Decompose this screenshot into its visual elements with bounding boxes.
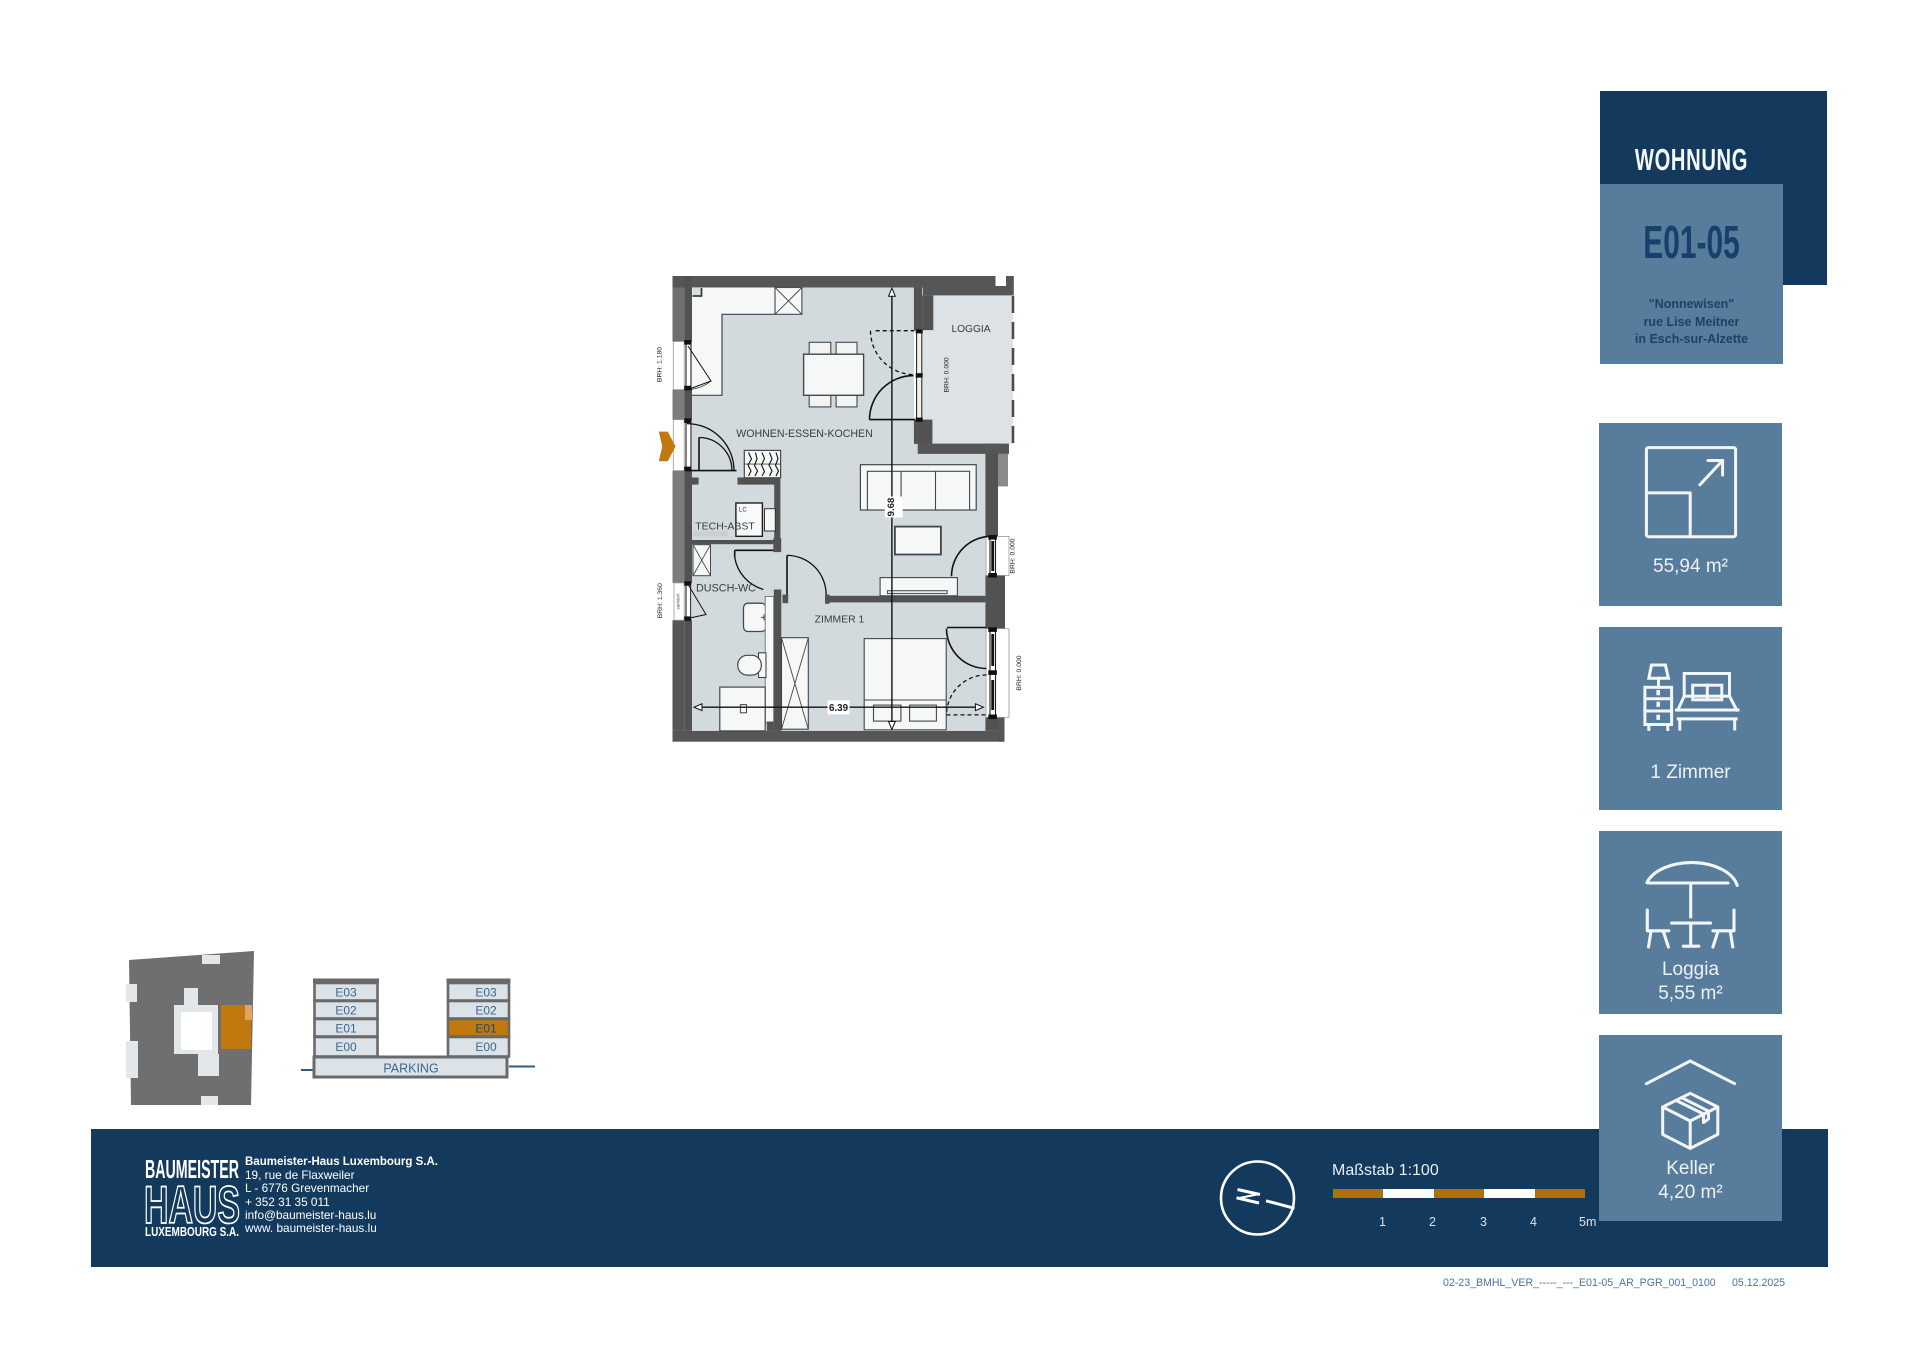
svg-text:PARKING: PARKING [383, 1062, 438, 1076]
svg-text:E00: E00 [475, 1040, 497, 1054]
svg-text:TECH-ABST: TECH-ABST [695, 521, 755, 533]
svg-text:WOHNEN-ESSEN-KOCHEN: WOHNEN-ESSEN-KOCHEN [736, 428, 873, 440]
svg-text:LUXEMBOURG S.A.: LUXEMBOURG S.A. [145, 1224, 239, 1239]
svg-text:LOGGIA: LOGGIA [951, 324, 990, 335]
svg-text:6.39: 6.39 [829, 703, 849, 714]
svg-text:BRH: 1.180: BRH: 1.180 [657, 347, 664, 382]
svg-text:ZIMMER 1: ZIMMER 1 [815, 615, 865, 626]
svg-text:E02: E02 [335, 1004, 357, 1018]
svg-text:BRH: 0.000: BRH: 0.000 [943, 357, 950, 392]
svg-text:satiniert: satiniert [676, 593, 681, 610]
svg-text:9.68: 9.68 [886, 497, 897, 516]
svg-text:E03: E03 [335, 986, 357, 1000]
svg-text:E01: E01 [335, 1022, 357, 1036]
svg-text:BRH: 0.000: BRH: 0.000 [1016, 655, 1023, 690]
svg-text:E00: E00 [335, 1040, 357, 1054]
svg-text:LC: LC [739, 508, 747, 514]
svg-text:E01: E01 [475, 1022, 497, 1036]
svg-text:BRH: 0.000: BRH: 0.000 [1010, 538, 1017, 573]
svg-text:E03: E03 [475, 986, 497, 1000]
svg-text:E02: E02 [475, 1004, 497, 1018]
svg-text:BRH: 1.360: BRH: 1.360 [657, 583, 664, 618]
svg-text:DUSCH-WC: DUSCH-WC [696, 583, 756, 595]
